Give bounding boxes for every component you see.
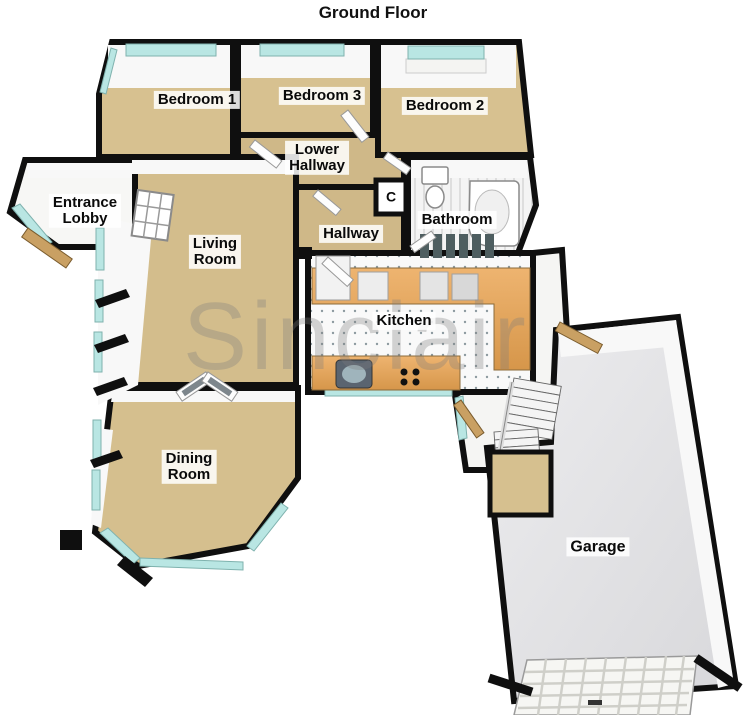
bedroom-2-sill <box>406 59 486 73</box>
room-label-hallway: Hallway <box>319 225 383 243</box>
room-label-living-room: Living Room <box>189 235 241 269</box>
page-title: Ground Floor <box>319 3 428 23</box>
room-label-bedroom-1: Bedroom 1 <box>154 91 240 109</box>
dining-bay-window-mid <box>140 558 243 570</box>
room-label-kitchen: Kitchen <box>372 312 435 330</box>
garage-door-handle <box>588 700 602 705</box>
toilet-tank <box>422 167 448 184</box>
room-label-cupboard: C <box>383 189 399 204</box>
dining-window-2 <box>92 470 100 510</box>
dining-window-1 <box>93 420 101 462</box>
garage-closet <box>490 452 551 515</box>
kitchen-unit-2 <box>420 272 448 300</box>
floorplan-drawing <box>0 0 750 715</box>
room-label-dining-room: Dining Room <box>162 450 217 484</box>
bedroom-1-window <box>126 44 216 56</box>
lobby-glazed-panel <box>132 190 174 241</box>
bedroom-3-window <box>260 44 344 56</box>
room-label-entrance-lobby: Entrance Lobby <box>49 194 121 228</box>
floorplan-page: Sinclair Ground Floor Bedroom 1 Bedroom … <box>0 0 750 715</box>
room-label-garage: Garage <box>566 537 629 556</box>
kitchen-counter-bottom <box>312 356 460 390</box>
living-window-1 <box>96 228 104 270</box>
kitchen-unit-3 <box>452 274 478 300</box>
bedroom-2-window <box>408 46 484 59</box>
toilet-bowl <box>426 186 444 208</box>
room-label-bathroom: Bathroom <box>418 211 497 229</box>
kitchen-unit-1 <box>358 272 388 300</box>
room-label-lower-hallway: Lower Hallway <box>285 141 349 175</box>
room-label-bedroom-3: Bedroom 3 <box>279 87 365 105</box>
room-label-bedroom-2: Bedroom 2 <box>402 97 488 115</box>
